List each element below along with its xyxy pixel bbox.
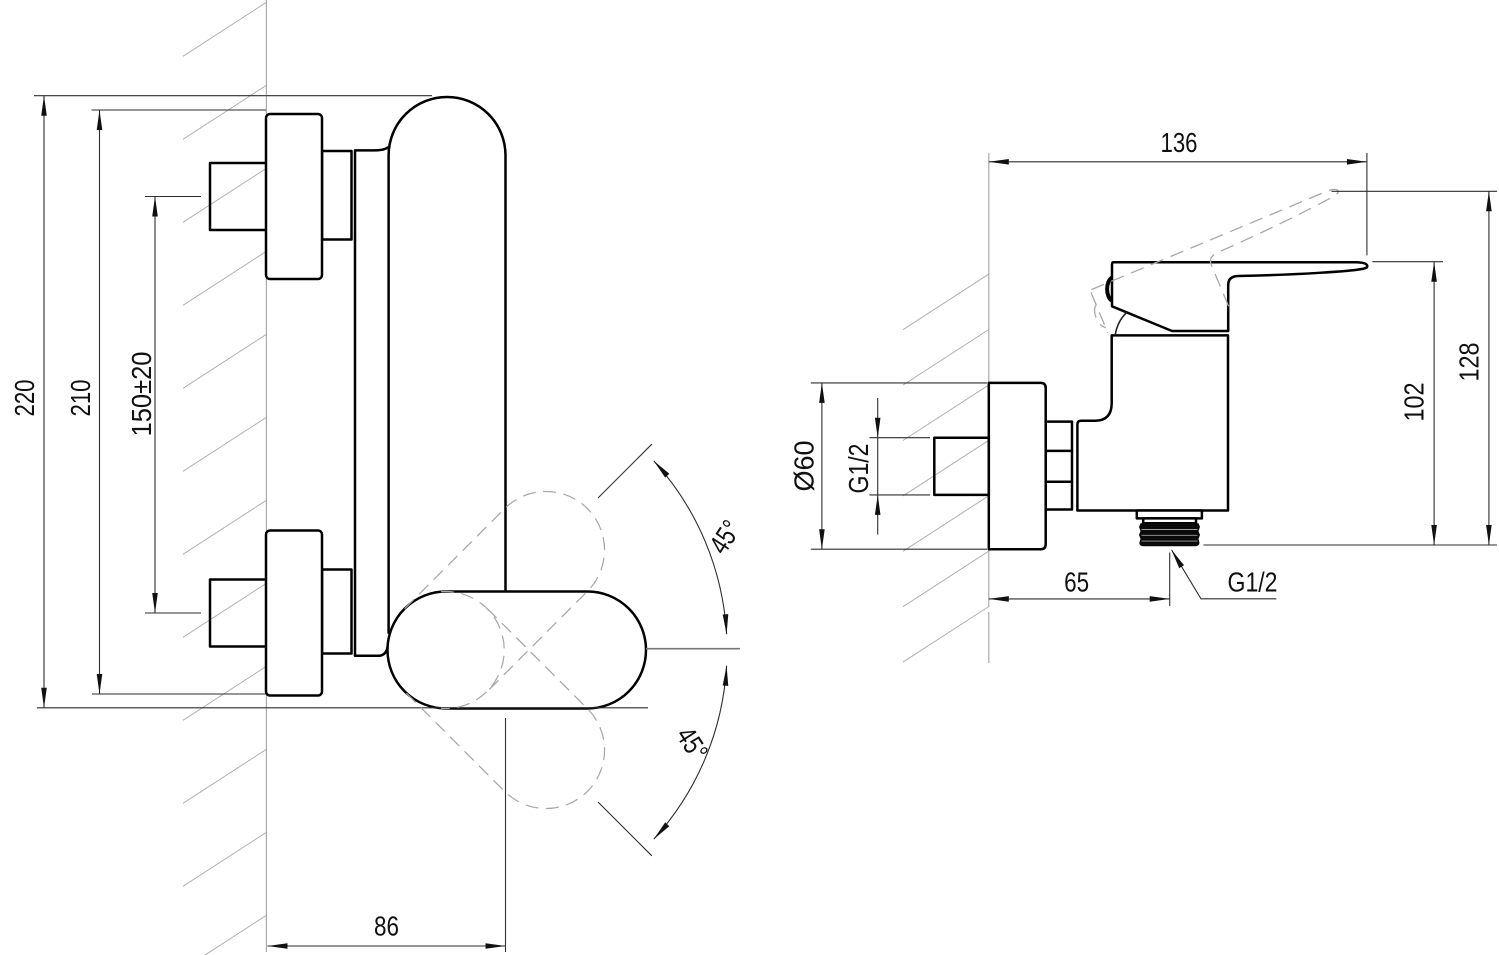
svg-text:G1/2: G1/2 [843, 444, 874, 494]
svg-text:220: 220 [9, 380, 40, 417]
svg-text:150±20: 150±20 [126, 352, 157, 437]
svg-text:210: 210 [65, 380, 96, 417]
svg-text:Ø60: Ø60 [789, 441, 820, 492]
svg-text:86: 86 [374, 911, 399, 942]
svg-text:136: 136 [1161, 127, 1198, 158]
svg-text:128: 128 [1453, 343, 1484, 382]
svg-text:102: 102 [1399, 383, 1430, 422]
svg-text:G1/2: G1/2 [1228, 567, 1278, 598]
svg-text:45°: 45° [670, 721, 714, 766]
svg-text:65: 65 [1064, 567, 1089, 598]
